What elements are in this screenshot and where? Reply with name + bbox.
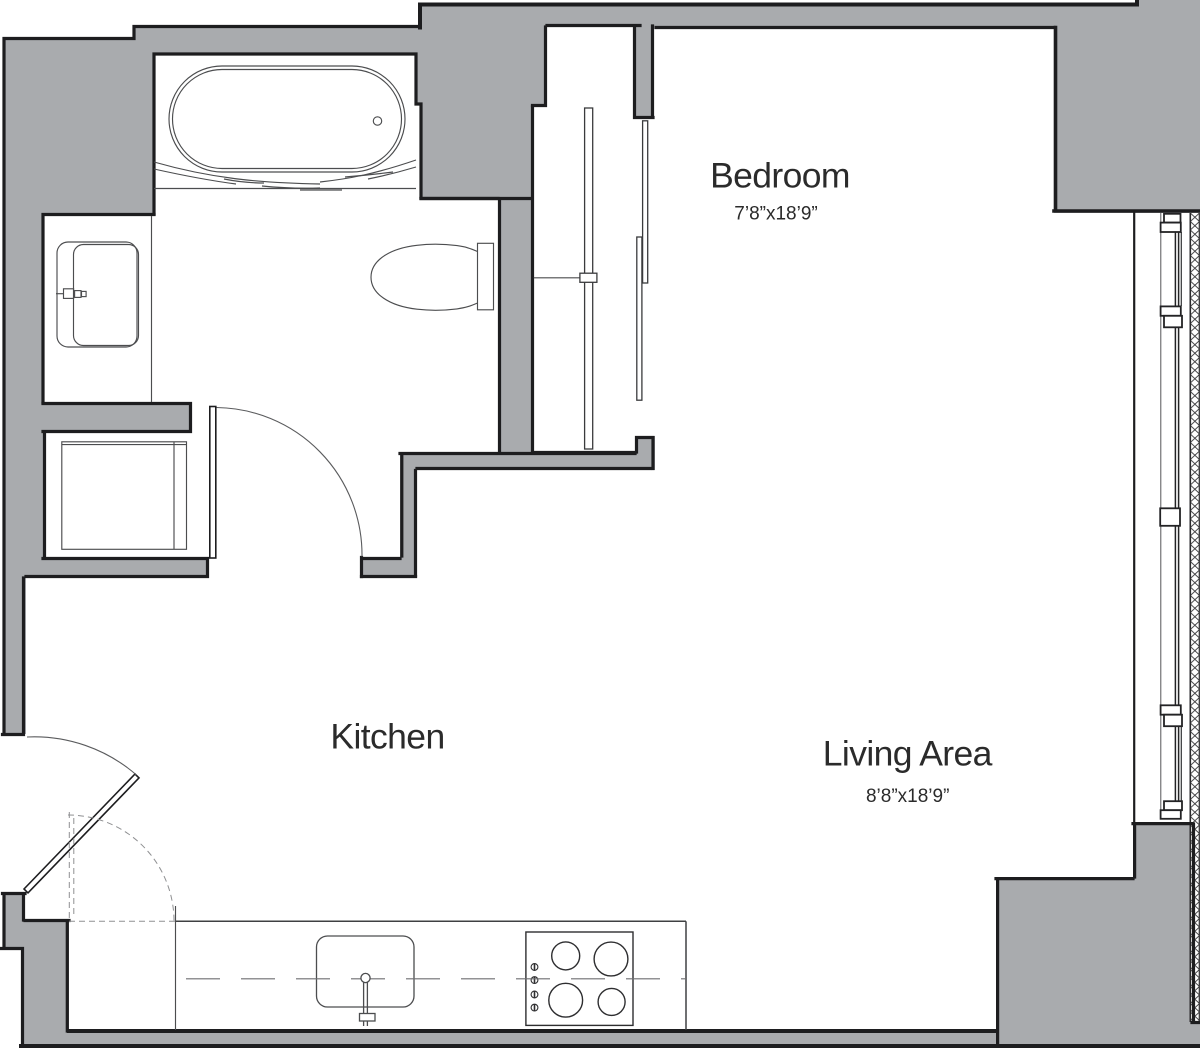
- svg-text:7’8”x18’9”: 7’8”x18’9”: [734, 204, 817, 225]
- svg-text:Bedroom: Bedroom: [710, 156, 850, 196]
- svg-text:Kitchen: Kitchen: [330, 717, 444, 757]
- svg-text:Living Area: Living Area: [823, 734, 993, 774]
- svg-text:8’8”x18’9”: 8’8”x18’9”: [866, 786, 949, 807]
